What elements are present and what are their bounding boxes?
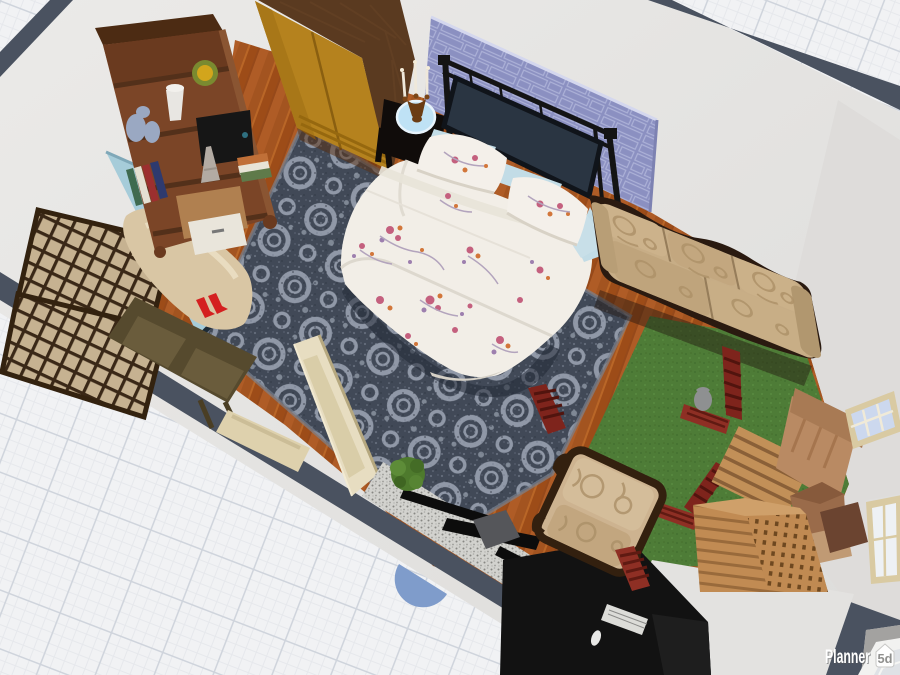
- svg-text:5d: 5d: [878, 652, 893, 666]
- svg-text:Planner: Planner: [825, 647, 870, 668]
